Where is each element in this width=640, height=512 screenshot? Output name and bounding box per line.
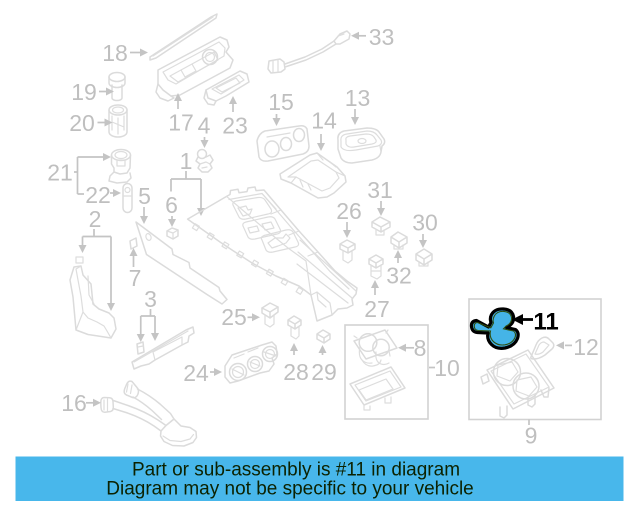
- svg-text:26: 26: [336, 198, 362, 224]
- svg-text:28: 28: [283, 359, 309, 385]
- svg-text:1: 1: [180, 148, 193, 174]
- svg-text:27: 27: [364, 296, 390, 322]
- svg-text:25: 25: [221, 304, 247, 330]
- svg-text:18: 18: [102, 40, 128, 66]
- svg-text:8: 8: [414, 335, 427, 361]
- svg-text:10: 10: [434, 355, 460, 381]
- svg-text:17: 17: [168, 110, 194, 136]
- svg-text:30: 30: [412, 210, 438, 236]
- svg-text:33: 33: [369, 24, 395, 50]
- svg-text:16: 16: [61, 390, 87, 416]
- svg-text:7: 7: [129, 265, 142, 291]
- svg-text:Diagram may not be specific to: Diagram may not be specific to your vehi…: [106, 479, 474, 500]
- svg-text:21: 21: [47, 160, 73, 186]
- svg-text:32: 32: [386, 263, 412, 289]
- svg-text:5: 5: [138, 183, 151, 209]
- svg-text:24: 24: [183, 360, 209, 386]
- svg-text:2: 2: [89, 206, 102, 232]
- svg-text:9: 9: [525, 423, 538, 449]
- svg-text:3: 3: [144, 286, 157, 312]
- svg-text:29: 29: [311, 359, 337, 385]
- svg-text:Part or sub-assembly is #11 in: Part or sub-assembly is #11 in diagram: [132, 460, 460, 481]
- svg-text:23: 23: [222, 113, 248, 139]
- svg-text:6: 6: [165, 192, 178, 218]
- svg-text:11: 11: [533, 309, 558, 336]
- svg-text:13: 13: [345, 85, 371, 111]
- svg-text:20: 20: [69, 110, 95, 136]
- svg-text:31: 31: [367, 177, 393, 203]
- svg-text:4: 4: [198, 113, 211, 139]
- svg-text:22: 22: [85, 182, 111, 208]
- svg-text:15: 15: [268, 89, 294, 115]
- svg-text:19: 19: [71, 79, 97, 105]
- svg-text:12: 12: [573, 334, 599, 360]
- svg-text:14: 14: [311, 108, 337, 134]
